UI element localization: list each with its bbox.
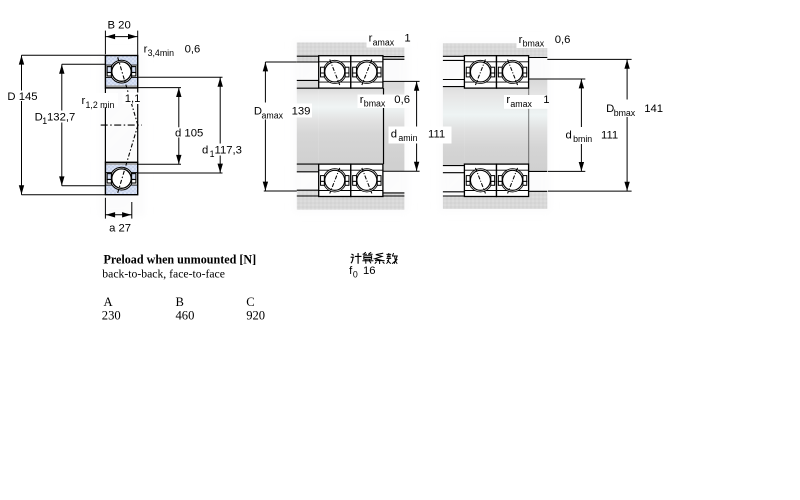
svg-text:1,2 min: 1,2 min <box>86 100 115 110</box>
svg-text:1: 1 <box>543 94 549 106</box>
svg-text:117,3: 117,3 <box>215 144 242 156</box>
svg-text:amax: amax <box>373 37 395 47</box>
svg-text:d: d <box>391 128 397 140</box>
svg-text:0,6: 0,6 <box>185 43 201 55</box>
svg-text:3,4min: 3,4min <box>148 48 175 58</box>
svg-text:920: 920 <box>246 309 265 323</box>
svg-text:bmin: bmin <box>573 134 592 144</box>
svg-text:1,1: 1,1 <box>125 93 141 105</box>
svg-text:amax: amax <box>262 111 284 121</box>
svg-text:111: 111 <box>428 128 445 140</box>
svg-text:132,7: 132,7 <box>47 111 75 123</box>
svg-text:0,6: 0,6 <box>555 34 571 46</box>
svg-text:D 145: D 145 <box>7 91 37 103</box>
svg-text:0: 0 <box>353 269 358 279</box>
svg-text:C: C <box>246 295 254 309</box>
svg-text:16: 16 <box>363 265 376 277</box>
svg-text:amin: amin <box>398 133 417 143</box>
svg-text:d: d <box>566 129 572 141</box>
svg-text:460: 460 <box>176 309 195 323</box>
svg-text:139: 139 <box>292 106 311 118</box>
svg-text:1: 1 <box>404 33 410 45</box>
svg-text:a 27: a 27 <box>109 222 131 234</box>
svg-text:B: B <box>176 295 184 309</box>
svg-text:141: 141 <box>644 103 663 115</box>
svg-text:Preload when unmounted [N]: Preload when unmounted [N] <box>104 252 257 266</box>
svg-text:amax: amax <box>510 99 532 109</box>
svg-text:bmax: bmax <box>614 108 636 118</box>
svg-text:B 20: B 20 <box>108 20 131 32</box>
svg-text:A: A <box>104 295 113 309</box>
svg-text:111: 111 <box>601 129 618 141</box>
svg-text:d 105: d 105 <box>175 127 203 139</box>
svg-text:230: 230 <box>102 309 121 323</box>
svg-text:0,6: 0,6 <box>394 94 410 106</box>
svg-text:bmax: bmax <box>364 99 386 109</box>
svg-text:d: d <box>202 144 208 156</box>
svg-text:bmax: bmax <box>523 39 545 49</box>
svg-text:back-to-back, face-to-face: back-to-back, face-to-face <box>102 268 225 281</box>
